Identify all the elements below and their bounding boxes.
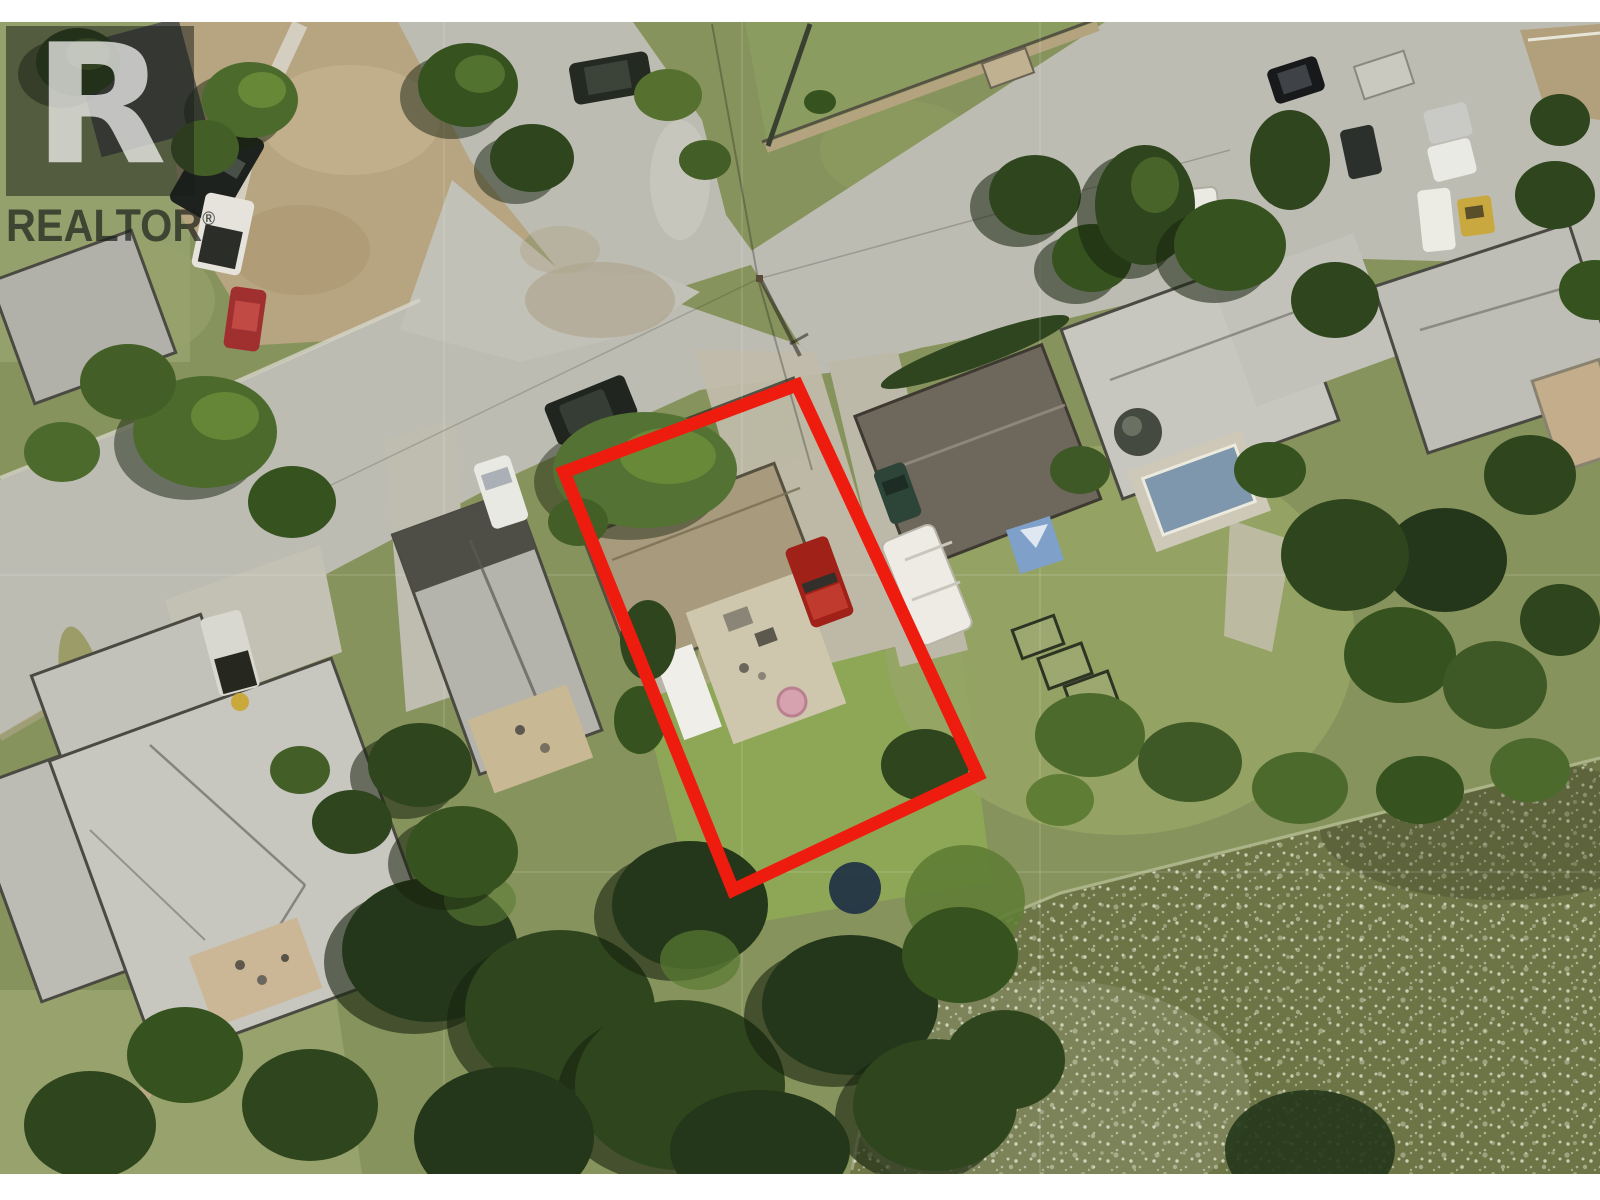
aerial-photo-page: R REALTOR® xyxy=(0,0,1600,1200)
top-margin xyxy=(0,0,1600,22)
yellow-loader xyxy=(1457,195,1496,237)
white-car-vertical xyxy=(1417,187,1456,252)
aerial-photo xyxy=(0,0,1600,1200)
round-pool-cover xyxy=(829,862,881,914)
hot-tub xyxy=(778,688,806,716)
bottom-margin xyxy=(0,1174,1600,1200)
